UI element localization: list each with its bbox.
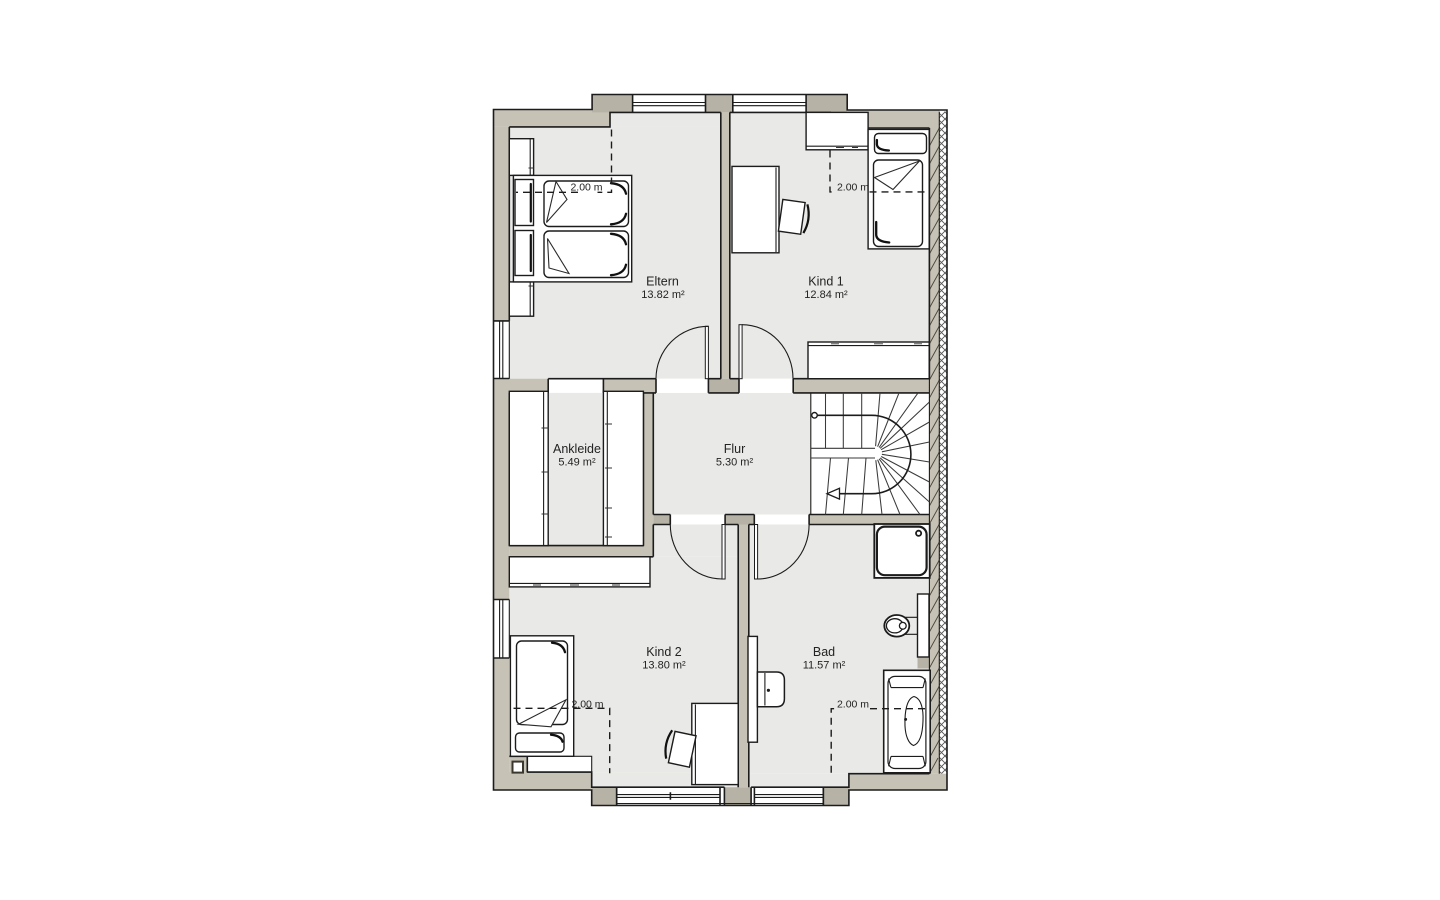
svg-text:Bad: Bad (813, 645, 835, 659)
svg-text:2.00 m: 2.00 m (837, 182, 869, 194)
svg-text:Kind 2: Kind 2 (646, 645, 681, 659)
svg-text:5.30 m²: 5.30 m² (716, 457, 754, 469)
svg-text:11.57 m²: 11.57 m² (803, 660, 846, 672)
svg-text:12.84 m²: 12.84 m² (804, 289, 848, 301)
svg-text:2.00 m: 2.00 m (570, 182, 602, 194)
svg-text:Eltern: Eltern (646, 275, 679, 289)
svg-text:2.00 m: 2.00 m (571, 699, 603, 711)
svg-text:13.80 m²: 13.80 m² (642, 660, 686, 672)
svg-text:2.00 m: 2.00 m (837, 699, 869, 711)
svg-text:Flur: Flur (724, 442, 746, 456)
svg-text:5.49 m²: 5.49 m² (558, 457, 596, 469)
svg-text:Kind 1: Kind 1 (808, 275, 843, 289)
svg-text:13.82 m²: 13.82 m² (641, 289, 685, 301)
svg-text:Ankleide: Ankleide (553, 442, 601, 456)
